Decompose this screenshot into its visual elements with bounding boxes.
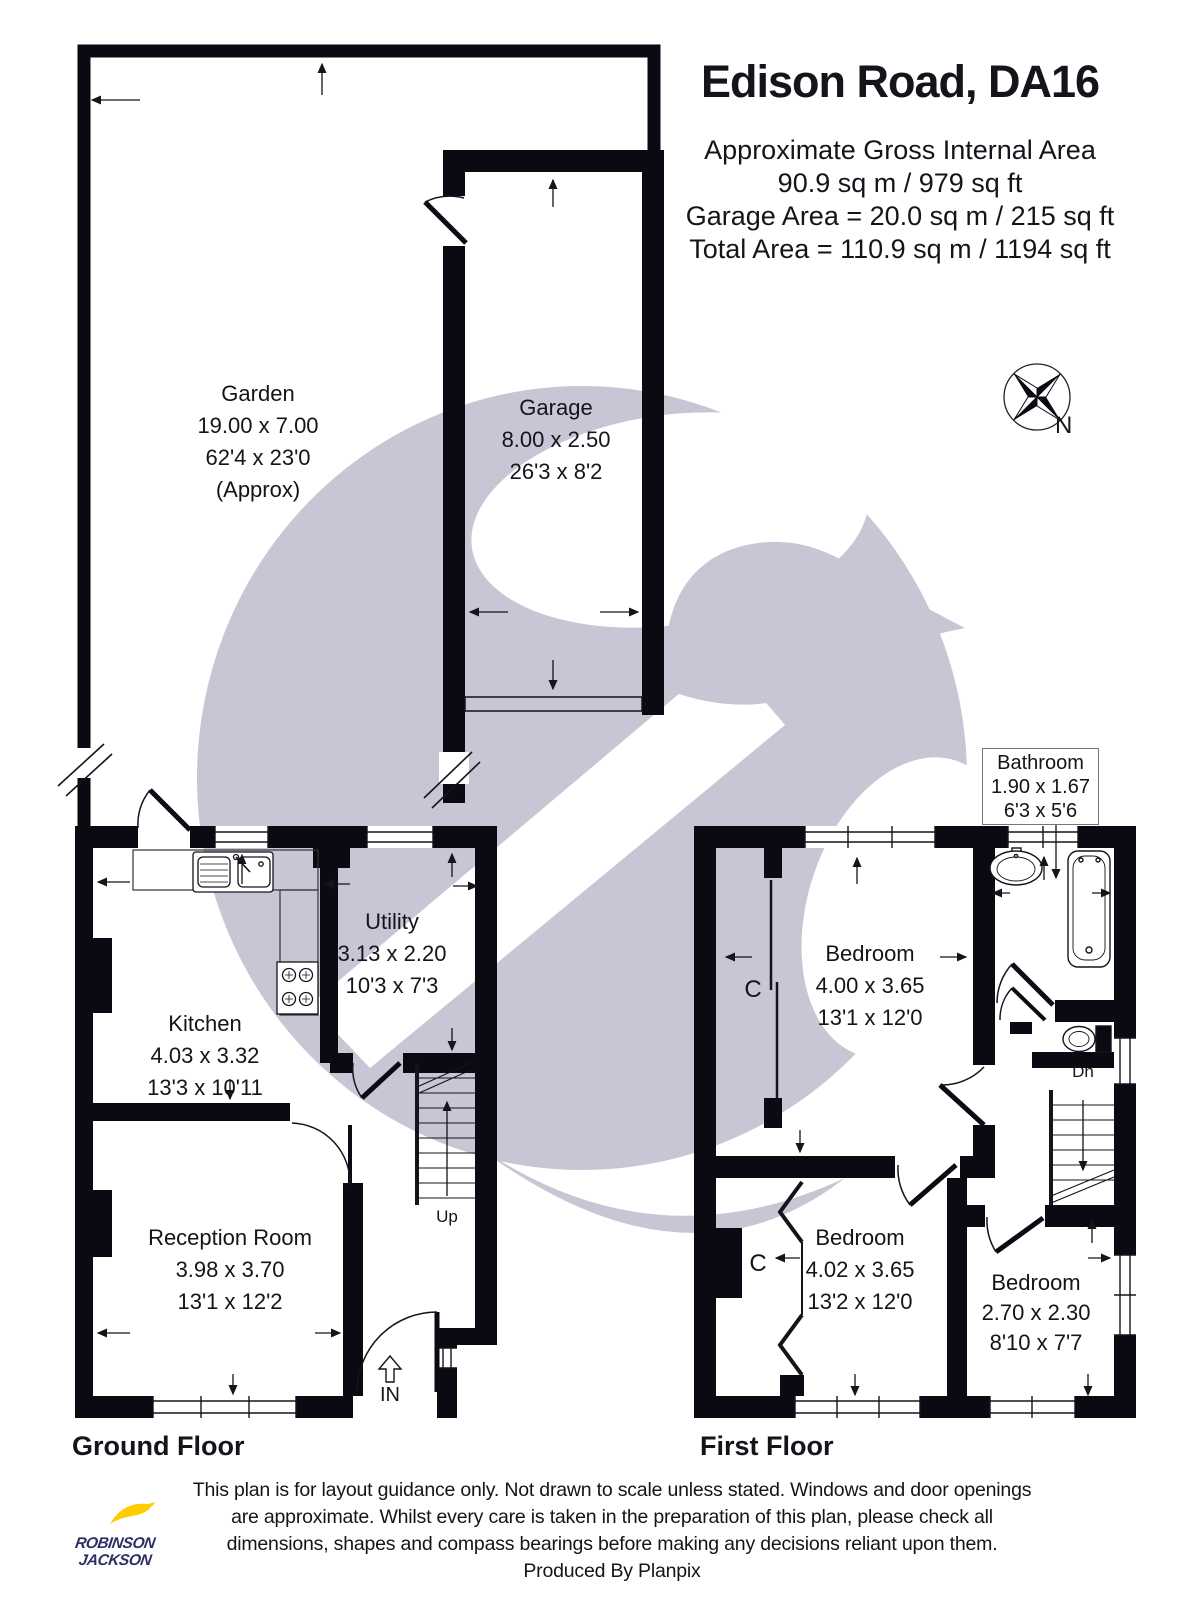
cupboard-label-2: C	[749, 1250, 766, 1278]
ground-stairs	[417, 1061, 475, 1205]
disclaimer-line: This plan is for layout guidance only. N…	[193, 1477, 1032, 1504]
ground-floor-label: Ground Floor	[72, 1431, 244, 1462]
entrance-arrow-icon	[379, 1356, 401, 1382]
first-stairs	[1051, 1090, 1114, 1205]
room-imperial: 6'3 x 5'6	[983, 799, 1098, 823]
room-name: Reception Room	[148, 1222, 312, 1254]
basin-icon	[990, 848, 1042, 885]
area-line: 90.9 sq m / 979 sq ft	[686, 167, 1115, 200]
room-metric: 4.02 x 3.65	[806, 1254, 915, 1286]
area-line: Total Area = 110.9 sq m / 1194 sq ft	[686, 233, 1115, 266]
cupboard-label-1: C	[744, 976, 761, 1004]
logo-line1: ROBINSON	[69, 1535, 161, 1552]
room-name: Garden	[197, 378, 318, 410]
stove-icon	[277, 962, 318, 1014]
room-metric: 4.03 x 3.32	[147, 1040, 263, 1072]
room-imperial: 62'4 x 23'0	[197, 442, 318, 474]
room-label-bedroom3: Bedroom 2.70 x 2.30 8'10 x 7'7	[982, 1268, 1091, 1358]
page-title: Edison Road, DA16	[701, 56, 1099, 108]
first-floor-label: First Floor	[700, 1431, 834, 1462]
entrance-label: IN	[380, 1384, 400, 1407]
room-name: Garage	[502, 392, 611, 424]
disclaimer: This plan is for layout guidance only. N…	[193, 1477, 1032, 1585]
room-label-garden: Garden 19.00 x 7.00 62'4 x 23'0 (Approx)	[197, 378, 318, 506]
room-metric: 2.70 x 2.30	[982, 1298, 1091, 1328]
agency-logo: ROBINSON JACKSON	[70, 1502, 160, 1569]
room-metric: 3.13 x 2.20	[338, 938, 447, 970]
disclaimer-line: are approximate. Whilst every care is ta…	[193, 1504, 1032, 1531]
room-name: Utility	[338, 906, 447, 938]
room-label-bedroom2: Bedroom 4.02 x 3.65 13'2 x 12'0	[806, 1222, 915, 1318]
room-label-kitchen: Kitchen 4.03 x 3.32 13'3 x 10'11	[147, 1008, 263, 1104]
bathroom-callout: Bathroom 1.90 x 1.67 6'3 x 5'6	[982, 748, 1099, 825]
floorplan-page: N Edison Road, DA16 Approximate Gross In…	[0, 0, 1188, 1600]
room-metric: 1.90 x 1.67	[983, 775, 1098, 799]
room-imperial: 13'3 x 10'11	[147, 1072, 263, 1104]
logo-line2: JACKSON	[69, 1552, 161, 1569]
room-imperial: 8'10 x 7'7	[982, 1328, 1091, 1358]
room-label-reception: Reception Room 3.98 x 3.70 13'1 x 12'2	[148, 1222, 312, 1318]
room-imperial: 26'3 x 8'2	[502, 456, 611, 488]
toilet-icon	[1063, 1026, 1111, 1052]
disclaimer-line: dimensions, shapes and compass bearings …	[193, 1531, 1032, 1558]
room-imperial: 13'1 x 12'0	[816, 1002, 925, 1034]
room-label-bedroom1: Bedroom 4.00 x 3.65 13'1 x 12'0	[816, 938, 925, 1034]
room-imperial: 13'1 x 12'2	[148, 1286, 312, 1318]
room-metric: 8.00 x 2.50	[502, 424, 611, 456]
area-summary: Approximate Gross Internal Area 90.9 sq …	[686, 134, 1115, 266]
area-line: Garage Area = 20.0 sq m / 215 sq ft	[686, 200, 1115, 233]
produced-by: Produced By Planpix	[193, 1558, 1032, 1585]
room-name: Bedroom	[816, 938, 925, 970]
logo-bird-icon	[70, 1502, 160, 1530]
stairs-down-label: Dn	[1072, 1062, 1094, 1082]
room-name: Bedroom	[982, 1268, 1091, 1298]
area-line: Approximate Gross Internal Area	[686, 134, 1115, 167]
cupboard-doors	[771, 880, 804, 1396]
sink-icon	[193, 852, 273, 892]
room-metric: 4.00 x 3.65	[816, 970, 925, 1002]
room-metric: 19.00 x 7.00	[197, 410, 318, 442]
stairs-up-label: Up	[436, 1207, 458, 1227]
room-label-garage: Garage 8.00 x 2.50 26'3 x 8'2	[502, 392, 611, 488]
room-imperial: 10'3 x 7'3	[338, 970, 447, 1002]
room-metric: 3.98 x 3.70	[148, 1254, 312, 1286]
room-name: Bedroom	[806, 1222, 915, 1254]
room-name: Kitchen	[147, 1008, 263, 1040]
compass-north-label: N	[1055, 412, 1072, 440]
room-imperial: 13'2 x 12'0	[806, 1286, 915, 1318]
room-label-utility: Utility 3.13 x 2.20 10'3 x 7'3	[338, 906, 447, 1002]
room-note: (Approx)	[197, 474, 318, 506]
room-name: Bathroom	[983, 751, 1098, 775]
bath-icon	[1068, 851, 1110, 967]
